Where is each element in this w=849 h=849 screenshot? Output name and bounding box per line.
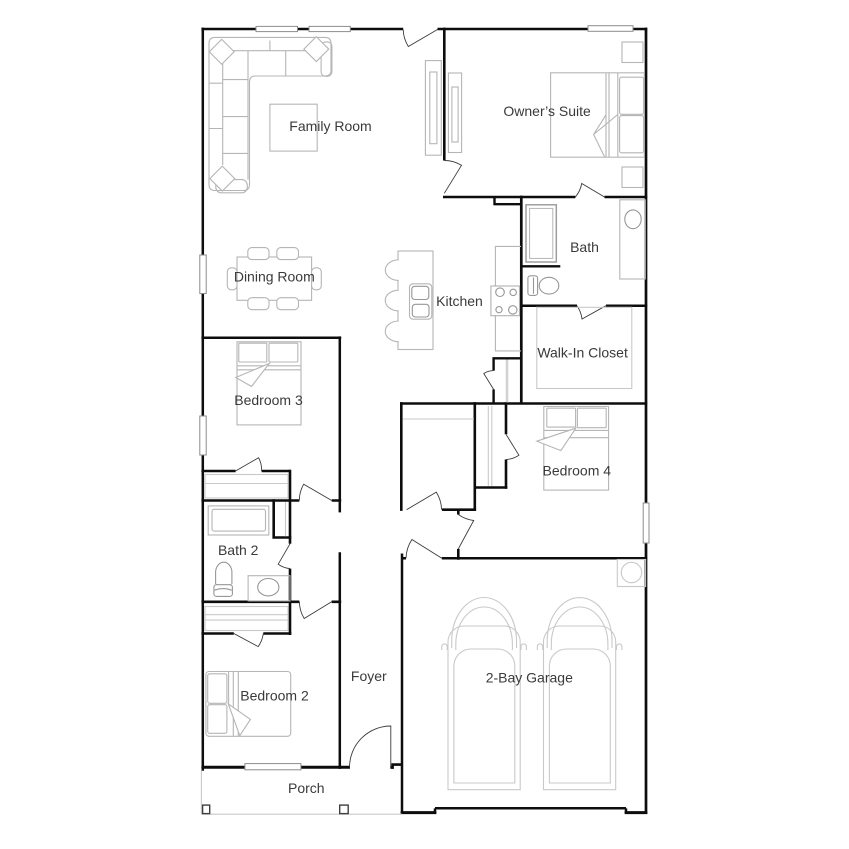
svg-text:Bath 2: Bath 2 — [218, 542, 259, 558]
svg-text:Bedroom 3: Bedroom 3 — [234, 392, 303, 408]
svg-text:Dining Room: Dining Room — [234, 268, 315, 284]
svg-text:2-Bay Garage: 2-Bay Garage — [486, 669, 573, 685]
svg-text:Foyer: Foyer — [351, 668, 387, 684]
svg-text:Family Room: Family Room — [289, 118, 371, 134]
svg-text:Porch: Porch — [288, 780, 325, 796]
svg-text:Bath: Bath — [570, 239, 599, 255]
svg-text:Walk-In Closet: Walk-In Closet — [537, 345, 628, 361]
svg-text:Kitchen: Kitchen — [436, 293, 483, 309]
svg-text:Bedroom 2: Bedroom 2 — [240, 687, 309, 703]
svg-text:Owner’s Suite: Owner’s Suite — [503, 103, 591, 119]
svg-text:Bedroom 4: Bedroom 4 — [543, 462, 612, 478]
